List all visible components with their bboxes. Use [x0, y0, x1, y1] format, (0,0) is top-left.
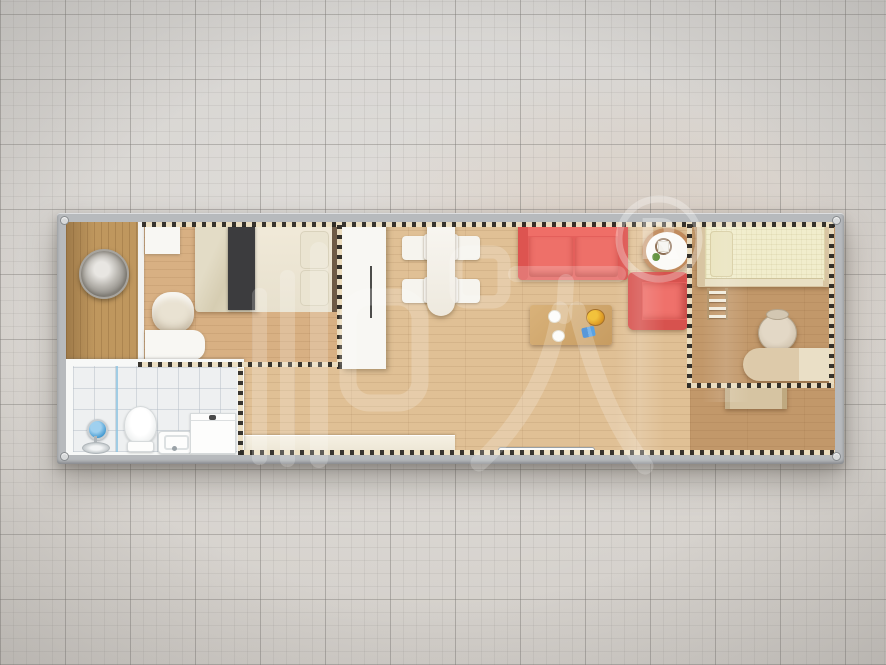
fruit-bowl [586, 309, 605, 326]
frame-bolt [60, 452, 69, 461]
bedroom1-shelf [145, 223, 180, 254]
wardrobe-handle [370, 266, 372, 318]
dining-chair-bottom-left [402, 279, 428, 303]
seam-bedroom2-left [687, 222, 692, 388]
bath-cabinet [190, 413, 236, 454]
bedroom1-desk [145, 330, 205, 360]
dining-chair-bottom-right [454, 279, 480, 303]
bed1-runner [228, 226, 255, 310]
chair2-headrest [766, 309, 789, 320]
shower-drain [82, 442, 110, 454]
desk-side-panel [799, 348, 833, 381]
shower-partition [116, 366, 118, 452]
seam-bedroom1-right [337, 222, 342, 369]
dining-table [427, 223, 455, 316]
wall-wreath-decor [79, 249, 129, 299]
floor-plan-render: R [0, 0, 886, 665]
bed1-pillow-bottom [300, 270, 329, 306]
frame-bolt [60, 216, 69, 225]
wall-sink [158, 431, 192, 454]
seam-bottom [240, 450, 835, 455]
shower-head [87, 419, 108, 440]
wardrobe [342, 222, 386, 369]
cabinet-knob [209, 415, 216, 420]
bedroom2-desk [743, 348, 833, 381]
sink-faucet [172, 446, 177, 451]
toilet-bowl [124, 406, 157, 444]
glare-band [702, 222, 750, 402]
seam-bedroom2-right [829, 222, 834, 388]
dining-chair-top-left [402, 236, 428, 260]
cabinet-lid-line [191, 420, 235, 421]
seam-bathroom-right [238, 368, 243, 455]
sofa-cushion-right [575, 237, 618, 277]
bedroom1-chair [152, 292, 194, 333]
bed1-pillow-top [300, 231, 329, 269]
frame-bolt [832, 216, 841, 225]
dish-icon [548, 310, 561, 323]
coffee-table [530, 305, 612, 345]
blue-toy [581, 326, 596, 338]
dining-chair-top-right [454, 236, 480, 260]
seam-bedroom1-bottom [138, 362, 342, 367]
plan-interior [66, 222, 835, 455]
dish-icon [552, 330, 565, 342]
sofa-arm-left [518, 223, 528, 280]
glare-band [615, 222, 665, 455]
bathroom [66, 359, 244, 455]
sofa-cushion-left [529, 237, 573, 277]
sofa [518, 223, 628, 280]
container-house-plan [57, 213, 844, 464]
bedroom1-bed [195, 223, 340, 312]
frame-bolt [832, 452, 841, 461]
entry-bedroom-wall [138, 222, 144, 359]
toilet-tank [127, 441, 154, 452]
